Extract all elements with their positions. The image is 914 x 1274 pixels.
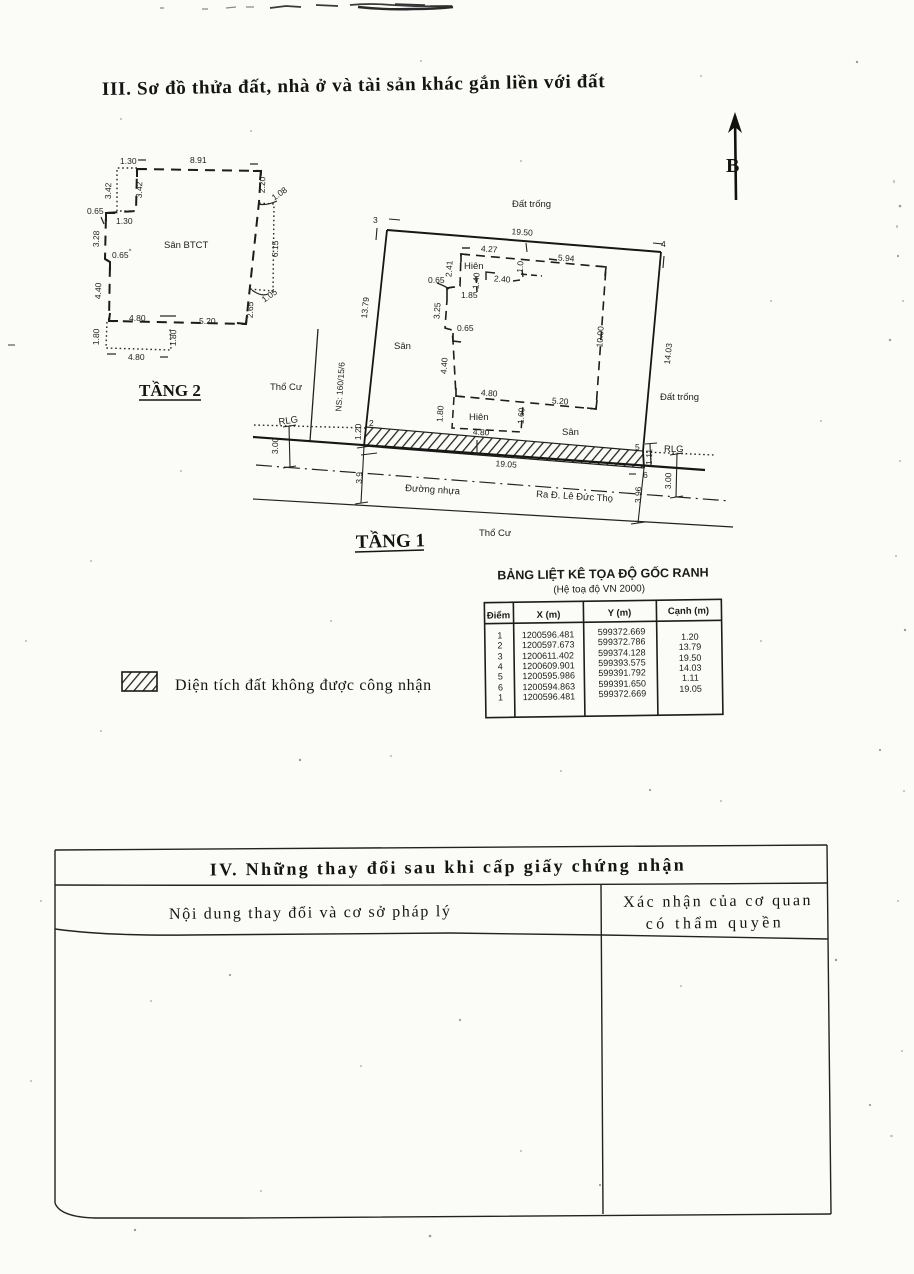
svg-text:3.28: 3.28: [91, 230, 102, 247]
svg-text:4.27: 4.27: [481, 243, 498, 254]
svg-text:Thổ Cư: Thổ Cư: [270, 382, 303, 393]
svg-text:1200596.481: 1200596.481: [522, 629, 575, 640]
svg-text:5: 5: [498, 671, 503, 681]
svg-text:1.11: 1.11: [682, 673, 699, 683]
svg-text:2: 2: [497, 640, 502, 650]
svg-text:599372.669: 599372.669: [598, 626, 646, 637]
svg-text:1200609.901: 1200609.901: [522, 660, 575, 671]
svg-text:5.94: 5.94: [558, 252, 575, 263]
svg-text:Hiên: Hiên: [464, 261, 484, 272]
svg-text:1.80: 1.80: [168, 329, 179, 346]
svg-text:4.80: 4.80: [481, 387, 498, 398]
svg-text:0.65: 0.65: [428, 275, 445, 285]
svg-text:1200596.481: 1200596.481: [523, 691, 576, 702]
svg-text:2.65: 2.65: [245, 301, 256, 318]
svg-text:10.00: 10.00: [594, 326, 605, 348]
svg-text:4.80: 4.80: [473, 427, 490, 438]
svg-text:4.80: 4.80: [128, 352, 145, 362]
svg-text:3.25: 3.25: [431, 302, 442, 319]
svg-text:19.50: 19.50: [511, 226, 533, 237]
svg-text:Sân: Sân: [562, 427, 579, 438]
svg-text:1.30: 1.30: [116, 216, 133, 226]
svg-text:3.00: 3.00: [663, 472, 674, 489]
svg-text:5.20: 5.20: [199, 316, 216, 326]
svg-text:4: 4: [498, 661, 503, 671]
svg-text:2: 2: [369, 418, 374, 428]
svg-text:RLG: RLG: [664, 444, 684, 455]
svg-text:3: 3: [498, 651, 503, 661]
svg-text:Cạnh (m): Cạnh (m): [668, 606, 709, 618]
svg-text:599374.128: 599374.128: [598, 647, 646, 658]
svg-text:3: 3: [373, 215, 378, 225]
svg-text:5: 5: [635, 442, 640, 452]
svg-text:1200611.402: 1200611.402: [522, 650, 574, 661]
svg-text:B: B: [726, 155, 739, 177]
svg-text:Điểm: Điểm: [487, 610, 510, 621]
svg-text:6.15: 6.15: [270, 240, 281, 257]
svg-text:5.20: 5.20: [552, 395, 569, 406]
svg-text:599372.786: 599372.786: [598, 636, 646, 647]
svg-text:1200594.863: 1200594.863: [522, 681, 575, 692]
svg-text:0.65: 0.65: [87, 206, 104, 216]
svg-text:4.40: 4.40: [438, 357, 449, 374]
svg-text:1: 1: [498, 692, 503, 702]
svg-text:có thẩm quyền: có thẩm quyền: [646, 914, 785, 932]
svg-text:1.80: 1.80: [91, 328, 102, 345]
svg-text:4: 4: [661, 239, 666, 249]
svg-text:19.05: 19.05: [679, 684, 702, 694]
svg-text:2.40: 2.40: [494, 273, 511, 284]
svg-text:6: 6: [498, 682, 503, 692]
svg-text:1200597.673: 1200597.673: [522, 639, 575, 650]
svg-text:Nội dung thay đổi và cơ sở phá: Nội dung thay đổi và cơ sở pháp lý: [169, 903, 452, 923]
svg-text:14.03: 14.03: [679, 663, 702, 673]
svg-text:599391.792: 599391.792: [598, 667, 646, 678]
svg-text:1.30: 1.30: [120, 156, 137, 166]
svg-text:19.50: 19.50: [679, 653, 702, 663]
svg-text:Đất trống: Đất trống: [512, 199, 551, 210]
svg-text:1.85: 1.85: [461, 290, 478, 300]
svg-text:Hiên: Hiên: [469, 412, 489, 423]
svg-text:8.91: 8.91: [190, 155, 207, 165]
svg-text:1.40: 1.40: [470, 272, 481, 289]
svg-text:6: 6: [643, 470, 648, 480]
svg-text:3.96: 3.96: [633, 486, 644, 503]
svg-text:13.79: 13.79: [679, 642, 702, 652]
svg-text:1200595.986: 1200595.986: [522, 670, 575, 681]
svg-text:1.11: 1.11: [644, 449, 655, 466]
svg-text:4.80: 4.80: [129, 313, 146, 323]
svg-text:3.9: 3.9: [354, 472, 364, 484]
svg-text:Y (m): Y (m): [608, 608, 632, 619]
svg-text:2.41: 2.41: [443, 260, 454, 277]
svg-text:4.40: 4.40: [93, 282, 104, 299]
svg-text:Xác nhận của cơ quan: Xác nhận của cơ quan: [623, 892, 813, 911]
svg-text:3.42: 3.42: [103, 182, 114, 199]
svg-text:Sân BTCT: Sân BTCT: [164, 240, 209, 251]
svg-text:BẢNG LIỆT KÊ TỌA ĐỘ GỐC RANH: BẢNG LIỆT KÊ TỌA ĐỘ GỐC RANH: [497, 565, 709, 583]
svg-text:1: 1: [497, 630, 502, 640]
svg-text:1.20: 1.20: [681, 632, 699, 642]
svg-text:599393.575: 599393.575: [598, 657, 646, 668]
svg-text:X (m): X (m): [537, 610, 561, 621]
svg-text:0.65: 0.65: [112, 250, 129, 260]
svg-text:Thổ Cư: Thổ Cư: [479, 528, 512, 539]
svg-text:1.20: 1.20: [353, 423, 364, 440]
svg-text:2.20: 2.20: [257, 176, 268, 193]
svg-text:0.65: 0.65: [457, 323, 474, 333]
svg-text:Sân: Sân: [394, 341, 411, 352]
svg-text:599391.650: 599391.650: [598, 678, 646, 689]
svg-text:Diện tích đất không được công: Diện tích đất không được công nhận: [175, 677, 432, 694]
svg-text:3.42: 3.42: [134, 181, 145, 198]
svg-text:TẦNG 2: TẦNG 2: [139, 381, 201, 400]
svg-text:1.60: 1.60: [515, 407, 526, 424]
svg-text:Đất trống: Đất trống: [660, 392, 699, 403]
svg-text:1.80: 1.80: [434, 405, 445, 422]
svg-text:(Hệ toạ độ VN 2000): (Hệ toạ độ VN 2000): [553, 583, 645, 595]
svg-text:19.05: 19.05: [495, 458, 517, 469]
svg-text:TẦNG 1: TẦNG 1: [356, 529, 426, 553]
svg-text:1.0: 1.0: [515, 260, 526, 273]
svg-text:599372.669: 599372.669: [599, 688, 647, 699]
